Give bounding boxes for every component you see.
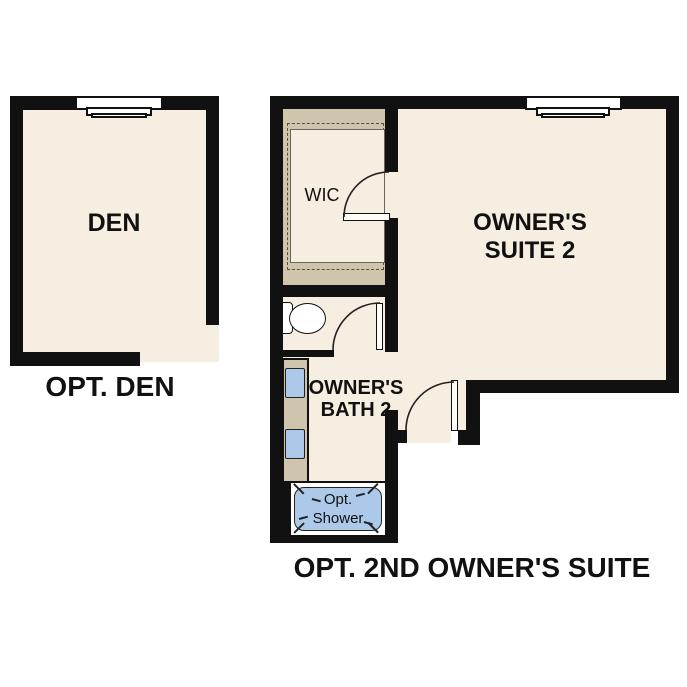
suite-wall-right <box>666 96 679 393</box>
sink-icon <box>285 368 305 398</box>
suite-caption: OPT. 2ND OWNER'S SUITE <box>277 551 667 585</box>
toilet-bowl-icon <box>289 303 326 334</box>
suite-window-sill-inner <box>541 113 605 118</box>
toilet-door-leaf <box>376 303 383 350</box>
den-wall-left <box>10 96 23 366</box>
owners-bath-room-label: OWNER'S BATH 2 <box>304 365 408 433</box>
den-floor-open-corner-right <box>206 325 219 362</box>
floorplan-canvas: DEN OPT. DEN <box>0 0 687 687</box>
wic-wall-right-upper <box>385 109 398 172</box>
plan-bottom-bar <box>270 535 398 543</box>
opt-shower-label: Opt. Shower <box>301 488 375 529</box>
suite-wall-left <box>270 96 283 543</box>
wic-room-label: WIC <box>300 185 344 205</box>
entry-door-leaf <box>451 380 458 431</box>
den-wall-bottom <box>10 352 140 366</box>
entry-opening-floor <box>407 430 451 443</box>
toilet-room-wall-bottom <box>270 350 334 357</box>
suite-step-foot <box>458 430 480 445</box>
den-window-sill-inner <box>91 113 147 118</box>
toilet-room-wall-top <box>270 285 398 297</box>
toilet-door-opening-floor <box>334 350 385 357</box>
wic-door-opening-floor <box>385 172 398 218</box>
sink-icon <box>285 429 305 459</box>
shower-wall-left <box>270 483 291 543</box>
den-floor-open-corner-bottom <box>140 353 206 362</box>
den-caption: OPT. DEN <box>18 371 202 403</box>
owners-suite-room-label: OWNER'S SUITE 2 <box>445 206 615 268</box>
den-room-label: DEN <box>54 208 174 238</box>
wic-door-leaf <box>343 213 390 221</box>
suite-wall-bottom <box>466 380 679 393</box>
den-wall-right <box>206 96 219 325</box>
